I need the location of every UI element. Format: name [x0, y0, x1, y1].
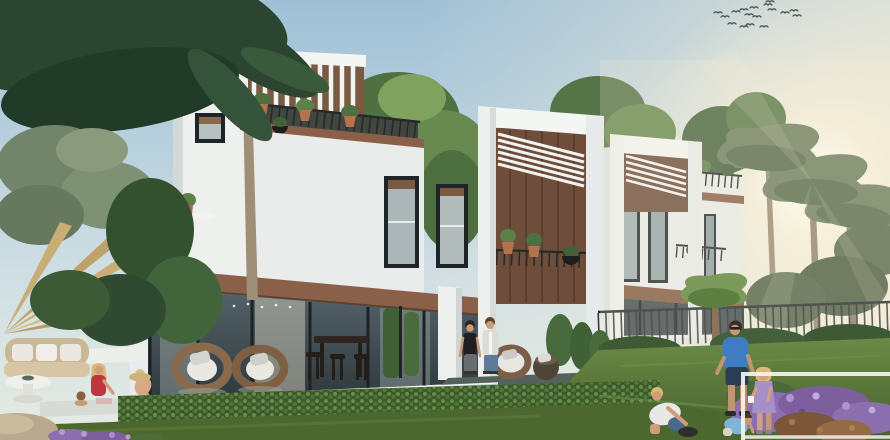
- scene-canvas: [0, 0, 890, 440]
- white-cup: [748, 396, 754, 403]
- warm-haze: [600, 60, 890, 360]
- wicker-sofa: [4, 338, 90, 377]
- rendering-image: [0, 0, 890, 440]
